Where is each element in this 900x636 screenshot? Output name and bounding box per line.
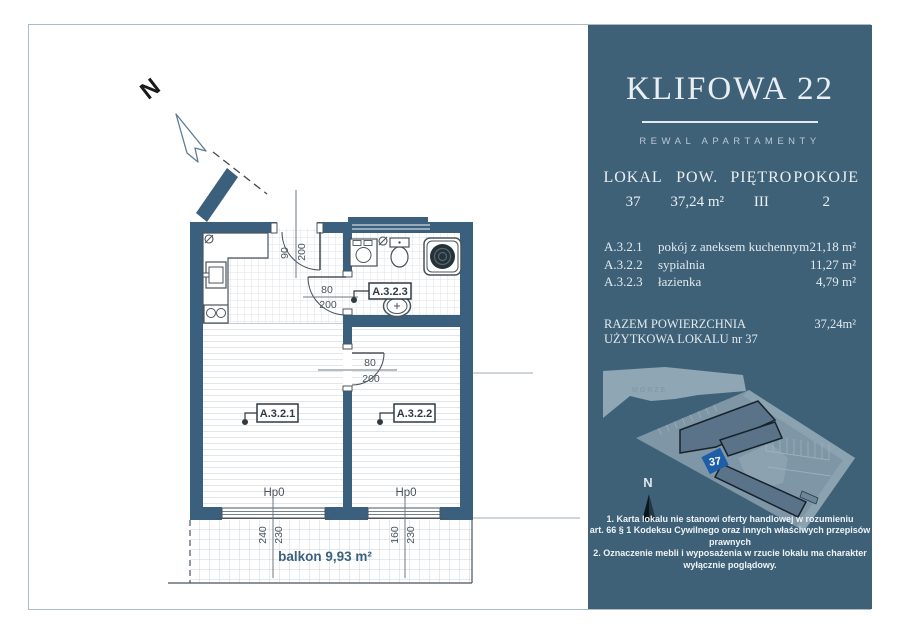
sea-label: MORZE <box>632 387 667 394</box>
bathroom-door-height: 200 <box>319 299 337 311</box>
bathroom-door-width: 80 <box>321 284 333 296</box>
title-divider <box>642 121 818 123</box>
window-left-height: 230 <box>273 526 285 544</box>
balcony-label: balkon 9,93 m² <box>278 549 372 564</box>
development-title: KLIFOWA 22 <box>588 71 872 108</box>
total-area-row: RAZEM POWIERZCHNIA UŻYTKOWA LOKALU nr 37… <box>588 317 872 347</box>
room-row-3: A.3.2.3 łazienka 4,79 m² <box>604 273 856 291</box>
legal-disclaimer: 1. Karta lokalu nie stanowi oferty handl… <box>588 514 872 572</box>
north-dart-icon <box>176 114 206 162</box>
bedroom-door-height: 200 <box>362 373 380 385</box>
entry-door-height: 200 <box>296 243 308 261</box>
shower <box>424 238 461 275</box>
window-right-width: 160 <box>389 526 401 544</box>
summary-col-pokoje: POKOJE 2 <box>793 169 859 211</box>
disclaimer-line-2: art. 66 § 1 Kodeksu Cywilnego oraz innyc… <box>588 525 872 548</box>
disclaimer-line-1: 1. Karta lokalu nie stanowi oferty handl… <box>588 514 872 526</box>
entry-door-width: 90 <box>279 247 291 259</box>
bedroom-door-width: 80 <box>364 357 376 369</box>
siteplan-north-label: N <box>643 475 652 490</box>
unit-summary: LOKAL 37 POW. 37,24 m² PIĘTRO III POKOJE… <box>588 169 872 211</box>
window-right <box>368 508 440 518</box>
bathroom-tag: A.3.2.3 <box>372 286 407 298</box>
summary-col-pow: POW. 37,24 m² <box>665 169 729 211</box>
living-room-tag: A.3.2.1 <box>260 408 295 420</box>
window-left-sill-label: Hp0 <box>263 487 284 499</box>
summary-col-pietro: PIĘTRO III <box>729 169 793 211</box>
apartment-card-page: N <box>0 0 900 636</box>
window-left-width: 240 <box>257 526 269 544</box>
room-list: A.3.2.1 pokój z aneksem kuchennym 21,18 … <box>588 238 872 291</box>
info-panel: KLIFOWA 22 REWAL APARTAMENTY LOKAL 37 PO… <box>588 25 872 609</box>
washing-machine <box>350 239 377 266</box>
development-subtitle: REWAL APARTAMENTY <box>588 136 872 147</box>
disclaimer-line-3: 2. Oznaczenie mebli i wyposażenia w rzuc… <box>588 548 872 571</box>
floor-plan: N <box>0 0 590 636</box>
window-right-sill-label: Hp0 <box>395 487 416 499</box>
plan-north-label: N <box>135 73 165 105</box>
bedroom-tag: A.3.2.2 <box>397 408 432 420</box>
summary-col-lokal: LOKAL 37 <box>601 169 665 211</box>
toilet <box>390 238 409 267</box>
room-row-1: A.3.2.1 pokój z aneksem kuchennym 21,18 … <box>604 238 856 256</box>
room-row-2: A.3.2.2 sypialnia 11,27 m² <box>604 256 856 274</box>
unit-marker-number: 37 <box>708 455 722 469</box>
plan-north-arrow: N <box>135 73 206 162</box>
entry-diagonal-wall <box>196 168 238 222</box>
window-right-height: 230 <box>405 526 417 544</box>
